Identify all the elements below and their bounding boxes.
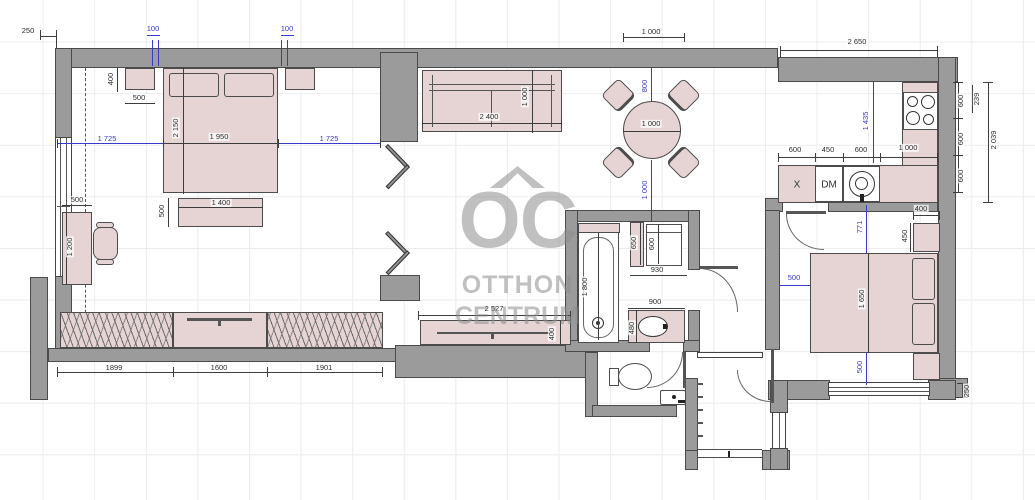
dimension-label: 1 000 (641, 180, 649, 201)
dimension-label: 1 000 (641, 120, 662, 128)
floor-plan: X DM (0, 0, 1035, 500)
dimension-label: 500 (787, 274, 802, 282)
dimension-label: 1 200 (66, 237, 74, 258)
dimension-label: 1 725 (97, 135, 118, 143)
dimension-label: 1 000 (521, 87, 529, 108)
dimension-label: 900 (648, 298, 663, 306)
dimension-label: 600 (648, 237, 656, 252)
dimension-label: 100 (280, 25, 295, 33)
dimension-label: 2 650 (847, 38, 868, 46)
dimension-label: 600 (957, 132, 965, 147)
dimension-label: 600 (854, 146, 869, 154)
dimension-label: 2 039 (990, 130, 998, 151)
dimension-label: 2 527 (484, 305, 505, 313)
dimension-label: 1 000 (641, 28, 662, 36)
dimension-label: 600 (957, 94, 965, 109)
dimension-label: 400 (914, 205, 929, 213)
dimension-label: 500 (70, 196, 85, 204)
dimension-label: 250 (21, 27, 36, 35)
dimension-label: 1901 (315, 364, 334, 372)
dimension-label: 930 (650, 266, 665, 274)
dimension-label: 400 (107, 72, 115, 87)
dimension-labels-layer: 2501001004005002 1501 9501 7251 7255001 … (0, 0, 1035, 500)
dimension-label: 1 400 (211, 199, 232, 207)
dimension-label: 1 725 (319, 135, 340, 143)
dimension-label: 450 (821, 146, 836, 154)
dimension-label: 600 (788, 146, 803, 154)
dimension-label: 500 (132, 94, 147, 102)
dimension-label: 1600 (210, 364, 229, 372)
dimension-label: 100 (146, 25, 161, 33)
dimension-label: 1 950 (209, 133, 230, 141)
dimension-label: 400 (548, 327, 556, 342)
dimension-label: 600 (957, 169, 965, 184)
dimension-label: 480 (628, 321, 636, 336)
dimension-label: 1 800 (581, 277, 589, 298)
dimension-label: 771 (856, 220, 864, 235)
dimension-label: 800 (641, 79, 649, 94)
dimension-label: 1 000 (898, 144, 919, 152)
dimension-label: 1 650 (858, 289, 866, 310)
appliance-label-x: X (794, 180, 801, 191)
dimension-label: 500 (856, 360, 864, 375)
dimension-label: 1 435 (862, 111, 870, 132)
dimension-label: 650 (630, 236, 638, 251)
dimension-label: 2 150 (172, 118, 180, 139)
dimension-label: 1899 (105, 364, 124, 372)
dimension-label: 250 (963, 384, 971, 399)
dimension-label: 450 (901, 229, 909, 244)
dimension-label: 2 400 (479, 113, 500, 121)
dimension-label: 500 (158, 204, 166, 219)
appliance-label-dm: DM (821, 180, 837, 191)
dimension-label: 239 (973, 92, 981, 107)
